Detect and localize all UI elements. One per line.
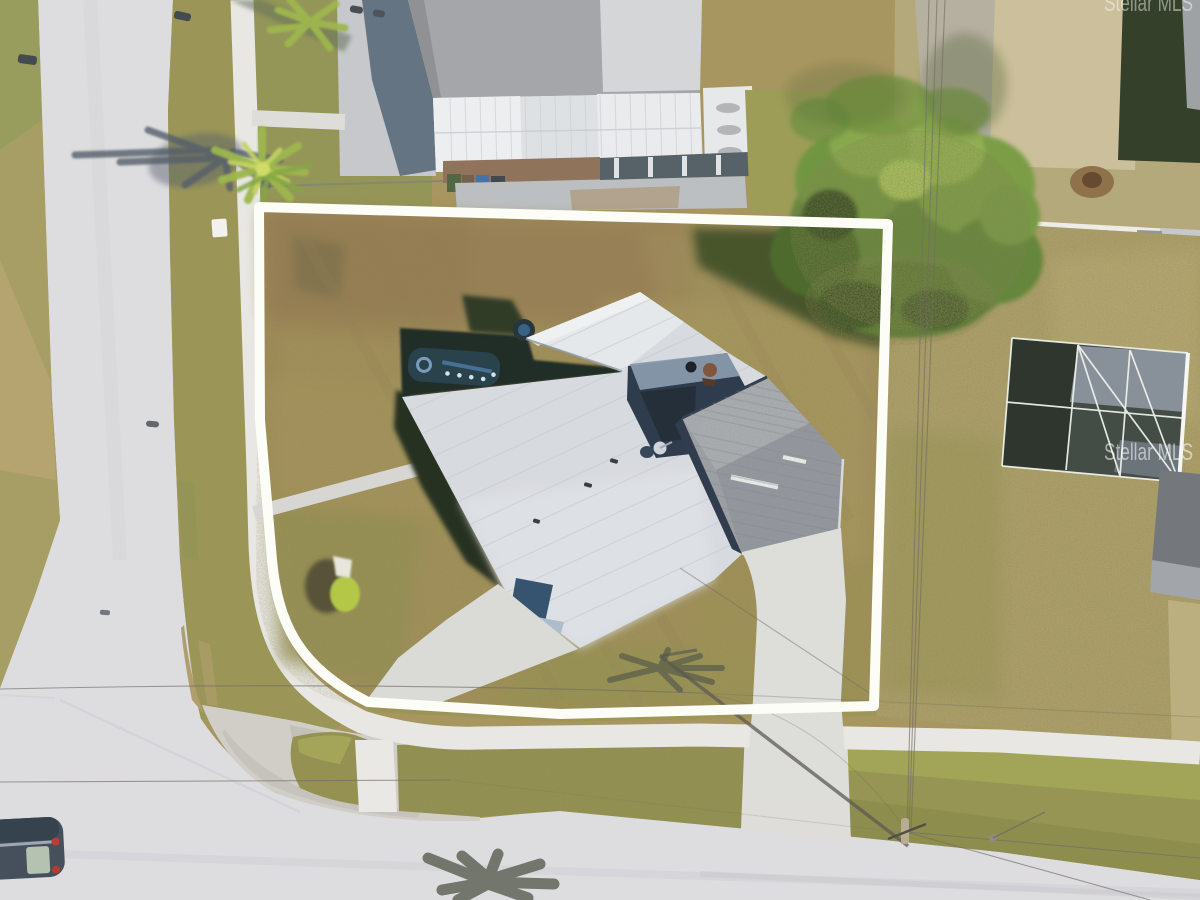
svg-text:Stellar MLS: Stellar MLS xyxy=(1104,0,1193,17)
svg-text:Stellar MLS: Stellar MLS xyxy=(1104,439,1193,466)
